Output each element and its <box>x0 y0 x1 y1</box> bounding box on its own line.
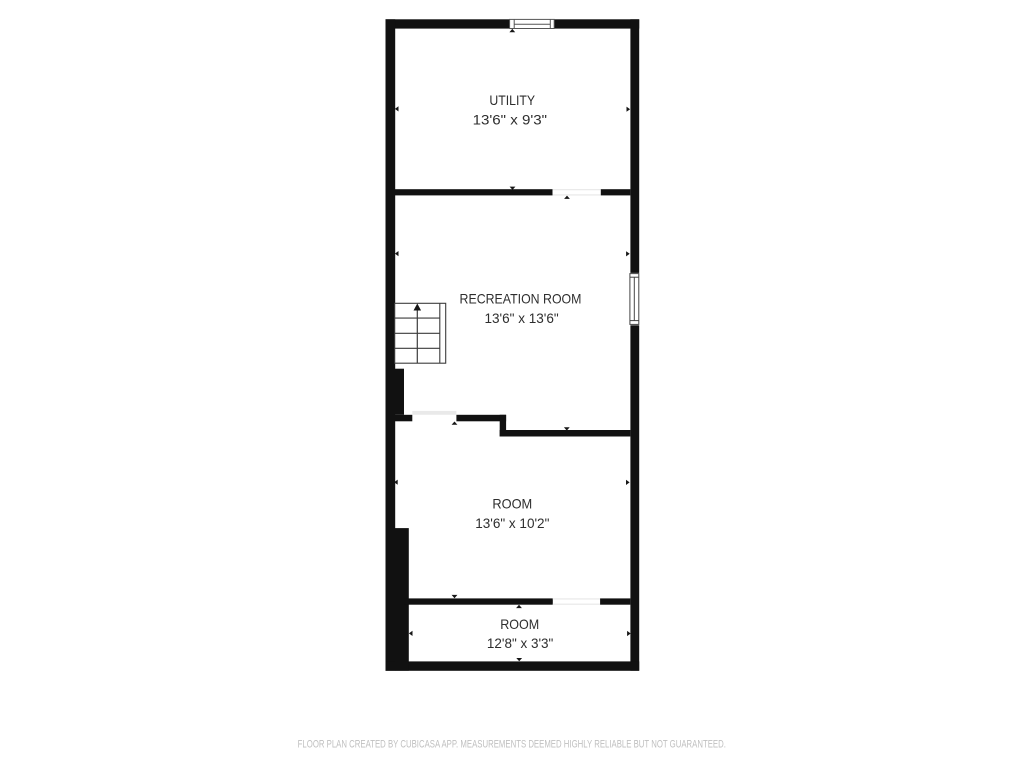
svg-text:13'6" x 9'3": 13'6" x 9'3" <box>473 112 548 127</box>
svg-text:ROOM: ROOM <box>492 496 532 511</box>
svg-text:13'6" x 10'2": 13'6" x 10'2" <box>475 516 549 531</box>
svg-text:FLOOR PLAN CREATED BY CUBICASA: FLOOR PLAN CREATED BY CUBICASA APP. MEAS… <box>298 737 726 750</box>
svg-text:RECREATION ROOM: RECREATION ROOM <box>460 291 582 306</box>
svg-text:12'8" x 3'3": 12'8" x 3'3" <box>487 636 553 651</box>
svg-text:UTILITY: UTILITY <box>489 93 535 108</box>
svg-text:ROOM: ROOM <box>500 617 539 632</box>
svg-text:13'6" x 13'6": 13'6" x 13'6" <box>484 311 558 326</box>
